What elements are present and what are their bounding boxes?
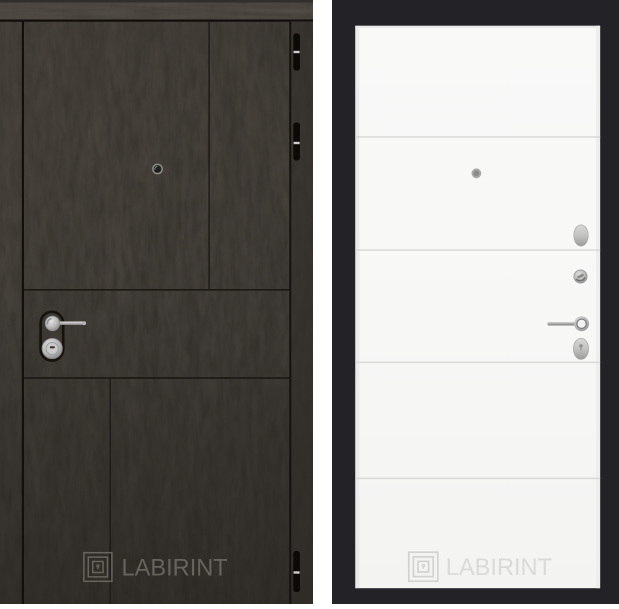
svg-text:LABIRINT: LABIRINT — [122, 556, 228, 582]
svg-text:LABIRINT: LABIRINT — [446, 555, 552, 581]
